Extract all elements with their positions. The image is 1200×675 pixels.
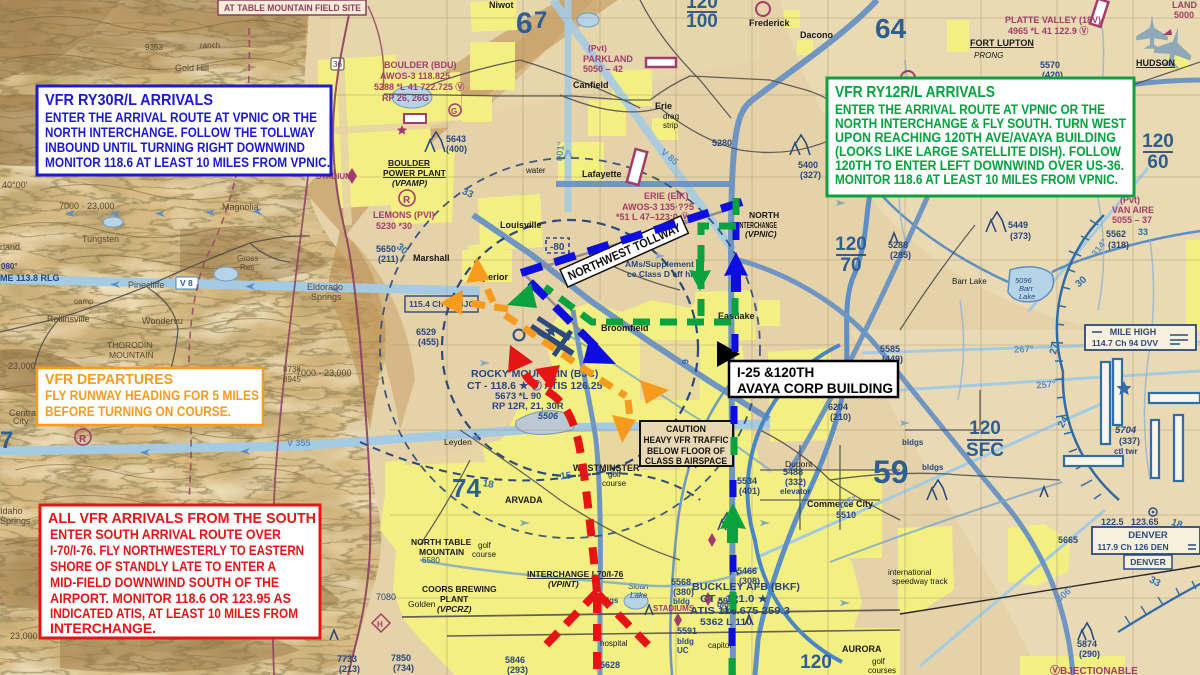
- svg-text:4965 *L 41 122.9 Ⓥ: 4965 *L 41 122.9 Ⓥ: [1008, 25, 1088, 36]
- svg-text:(213): (213): [339, 664, 360, 674]
- svg-text:5280: 5280: [712, 138, 732, 148]
- svg-text:AMs/Supplement: AMs/Supplement: [625, 259, 694, 269]
- svg-text:7000 - 23,000: 7000 - 23,000: [296, 368, 352, 378]
- svg-text:Gold Hill: Gold Hill: [175, 63, 209, 73]
- svg-text:bldg: bldg: [673, 597, 690, 606]
- svg-text:15: 15: [560, 470, 572, 482]
- svg-text:V 8: V 8: [180, 278, 193, 288]
- svg-text:6204: 6204: [828, 402, 848, 412]
- svg-text:(308): (308): [739, 576, 760, 586]
- svg-text:Lake: Lake: [1019, 292, 1035, 301]
- svg-text:ⓋBJECTIONABLE: ⓋBJECTIONABLE: [1050, 664, 1138, 675]
- svg-text:74: 74: [452, 473, 481, 503]
- svg-text:Springs: Springs: [0, 516, 31, 526]
- svg-text:7: 7: [534, 7, 547, 34]
- svg-text:NORTH INTERCHANGE. FOLLOW THE: NORTH INTERCHANGE. FOLLOW THE TOLLWAY: [45, 125, 315, 141]
- svg-text:speedway track: speedway track: [892, 577, 949, 586]
- svg-text:5562: 5562: [1106, 229, 1126, 239]
- svg-text:DENVER: DENVER: [1130, 557, 1165, 567]
- svg-text:bldg: bldg: [677, 637, 694, 646]
- svg-text:R: R: [403, 195, 411, 206]
- svg-text:5704: 5704: [1115, 425, 1137, 436]
- svg-text:V 355: V 355: [287, 438, 311, 448]
- svg-text:120: 120: [1142, 131, 1174, 152]
- svg-text:40°00': 40°00': [2, 180, 28, 190]
- svg-text:Barr Lake: Barr Lake: [952, 277, 987, 286]
- svg-text:camp: camp: [74, 297, 94, 306]
- svg-text:ctl twr: ctl twr: [1114, 447, 1138, 456]
- svg-text:NORTH INTERCHANGE & FLY SOUTH.: NORTH INTERCHANGE & FLY SOUTH. TURN WEST: [835, 116, 1127, 131]
- svg-text:Leyden: Leyden: [444, 437, 472, 447]
- svg-text:6529: 6529: [416, 327, 436, 337]
- svg-text:5568: 5568: [671, 577, 691, 587]
- svg-text:hospital: hospital: [600, 639, 628, 648]
- svg-text:CLASS B AIRSPACE: CLASS B AIRSPACE: [645, 456, 727, 466]
- svg-text:(380): (380): [673, 587, 694, 597]
- svg-text:LEMONS (PVI): LEMONS (PVI): [373, 210, 435, 220]
- svg-text:5650: 5650: [376, 244, 396, 254]
- svg-text:5000: 5000: [1174, 10, 1194, 20]
- svg-text:PARKLAND: PARKLAND: [583, 54, 633, 64]
- svg-text:Tungsten: Tungsten: [82, 234, 119, 244]
- svg-text:5643: 5643: [446, 134, 466, 144]
- svg-text:I-70/I-76. FLY NORTHWESTERLY T: I-70/I-76. FLY NORTHWESTERLY TO EASTERN: [50, 543, 304, 558]
- svg-text:MONITOR 118.6 AT LEAST 10 MILE: MONITOR 118.6 AT LEAST 10 MILES FROM VPN…: [45, 155, 330, 171]
- svg-text:001°: 001°: [554, 141, 567, 162]
- svg-text:Springs: Springs: [311, 292, 342, 302]
- svg-text:PLATTE VALLEY (18V): PLATTE VALLEY (18V): [1005, 15, 1101, 25]
- svg-text:Lake: Lake: [630, 591, 648, 600]
- svg-text:Louisville: Louisville: [500, 220, 542, 230]
- svg-text:H: H: [377, 620, 383, 629]
- svg-text:courses: courses: [868, 666, 896, 675]
- svg-text:SHORE OF STANDLY LATE TO ENTER: SHORE OF STANDLY LATE TO ENTER A: [50, 559, 276, 574]
- svg-text:ranch: ranch: [200, 41, 220, 50]
- svg-text:23,000: 23,000: [10, 631, 38, 641]
- svg-text:MOUNTAIN: MOUNTAIN: [109, 350, 154, 360]
- svg-text:Magnolia: Magnolia: [222, 202, 259, 212]
- svg-text:BELOW FLOOR OF: BELOW FLOOR OF: [647, 446, 726, 456]
- svg-text:Wondervu: Wondervu: [142, 316, 183, 326]
- svg-text:(332): (332): [785, 477, 806, 487]
- svg-text:PLANT: PLANT: [440, 594, 469, 604]
- svg-text:(VPINT): (VPINT): [548, 579, 579, 589]
- svg-text:7850: 7850: [391, 653, 411, 663]
- svg-text:(211): (211): [378, 254, 399, 264]
- svg-text:PRONG: PRONG: [974, 51, 1003, 60]
- svg-text:9353: 9353: [145, 43, 163, 52]
- svg-text:AWOS-3 135·??5: AWOS-3 135·??5: [622, 202, 694, 212]
- svg-text:7: 7: [0, 427, 13, 454]
- svg-text:5466: 5466: [737, 566, 757, 576]
- svg-text:8945: 8945: [283, 375, 301, 384]
- svg-text:Marshall: Marshall: [413, 253, 450, 263]
- svg-text:(210): (210): [830, 412, 851, 422]
- svg-text:Frederick: Frederick: [749, 18, 791, 28]
- svg-text:Gross: Gross: [237, 254, 258, 263]
- svg-text:ARVADA: ARVADA: [505, 495, 543, 505]
- svg-text:G: G: [451, 107, 457, 116]
- svg-text:Eldorado: Eldorado: [307, 282, 343, 292]
- svg-text:INTERCHANGE I-70/I-76: INTERCHANGE I-70/I-76: [527, 569, 624, 579]
- svg-text:MILE HIGH: MILE HIGH: [1110, 327, 1157, 337]
- svg-text:114.7 Ch 94 DVV: 114.7 Ch 94 DVV: [1092, 338, 1158, 348]
- svg-text:117.9 Ch 126 DEN: 117.9 Ch 126 DEN: [1097, 542, 1168, 552]
- svg-text:5288 *L 41 722.725 Ⓥ: 5288 *L 41 722.725 Ⓥ: [374, 81, 464, 92]
- svg-text:ENTER SOUTH ARRIVAL ROUTE OVER: ENTER SOUTH ARRIVAL ROUTE OVER: [50, 527, 281, 542]
- svg-text:5510: 5510: [836, 510, 856, 520]
- svg-text:5846: 5846: [505, 655, 525, 665]
- svg-text:23,000: 23,000: [8, 361, 36, 371]
- svg-text:HUDSON: HUDSON: [1136, 58, 1175, 68]
- svg-text:120: 120: [969, 418, 1001, 439]
- svg-text:(401): (401): [739, 486, 760, 496]
- svg-text:FLY RUNWAY HEADING FOR 5 MILES: FLY RUNWAY HEADING FOR 5 MILES: [45, 388, 259, 403]
- svg-text:City: City: [13, 416, 29, 426]
- svg-text:Canfield: Canfield: [573, 80, 609, 90]
- svg-text:R: R: [79, 434, 87, 445]
- svg-text:AT TABLE MOUNTAIN FIELD SITE: AT TABLE MOUNTAIN FIELD SITE: [224, 3, 361, 14]
- svg-text:Erie: Erie: [655, 101, 672, 111]
- svg-text:(373): (373): [1010, 231, 1031, 241]
- svg-text:7000 · 23,000: 7000 · 23,000: [59, 201, 115, 211]
- svg-text:5570: 5570: [1040, 60, 1060, 70]
- svg-text:DENVER: DENVER: [1128, 530, 1168, 541]
- svg-text:-80: -80: [550, 242, 565, 253]
- svg-text:(290): (290): [1079, 649, 1100, 659]
- svg-text:Pinecliffe: Pinecliffe: [128, 280, 164, 290]
- svg-text:36: 36: [333, 60, 342, 69]
- svg-text:Rollinsville: Rollinsville: [47, 314, 90, 324]
- svg-text:100: 100: [686, 11, 718, 32]
- svg-text:I-25 &120TH: I-25 &120TH: [737, 365, 814, 380]
- svg-text:60: 60: [1147, 152, 1168, 173]
- svg-text:080°: 080°: [1, 262, 18, 271]
- svg-text:6: 6: [516, 7, 533, 40]
- svg-text:5585: 5585: [880, 344, 900, 354]
- svg-text:bldgs: bldgs: [922, 463, 944, 472]
- svg-text:INTERCHANGE.: INTERCHANGE.: [50, 621, 156, 636]
- svg-text:59: 59: [873, 454, 909, 490]
- svg-text:BEFORE TURNING ON COURSE.: BEFORE TURNING ON COURSE.: [45, 404, 231, 419]
- svg-text:5628: 5628: [600, 660, 620, 670]
- svg-text:Res: Res: [240, 263, 254, 272]
- svg-text:5288: 5288: [888, 240, 908, 250]
- svg-text:AIRPORT. MONITOR 118.6 OR 123.: AIRPORT. MONITOR 118.6 OR 123.95 AS: [50, 591, 291, 606]
- svg-text:POWER PLANT: POWER PLANT: [383, 168, 447, 178]
- svg-text:5050 – 42: 5050 – 42: [583, 64, 623, 74]
- svg-text:Lafayette: Lafayette: [582, 169, 622, 179]
- svg-text:122.5 123.65: 122.5 123.65: [1101, 517, 1159, 527]
- svg-text:(VPAMP): (VPAMP): [392, 178, 427, 188]
- svg-text:ENTER THE ARRIVAL ROUTE AT VPN: ENTER THE ARRIVAL ROUTE AT VPNIC OR THE: [835, 102, 1105, 117]
- svg-text:course: course: [602, 479, 627, 488]
- svg-text:5449: 5449: [1008, 220, 1028, 230]
- svg-text:MONITOR 118.6 AT LEAST 10 MILE: MONITOR 118.6 AT LEAST 10 MILES FROM VPN…: [835, 172, 1118, 187]
- svg-text:rland: rland: [0, 242, 20, 252]
- svg-text:5665: 5665: [1058, 535, 1078, 545]
- svg-text:COORS BREWING: COORS BREWING: [422, 584, 497, 594]
- svg-text:water: water: [525, 166, 546, 175]
- svg-text:115.4 Ch ▯▯ BJC: 115.4 Ch ▯▯ BJC: [409, 299, 475, 309]
- svg-text:ATIS 119.675 259.3: ATIS 119.675 259.3: [690, 606, 790, 617]
- svg-text:LAND (: LAND (: [1172, 0, 1200, 10]
- svg-text:CAUTION: CAUTION: [666, 424, 706, 434]
- svg-text:120TH TO ENTER LEFT DOWNWIND O: 120TH TO ENTER LEFT DOWNWIND OVER US-36.: [835, 158, 1124, 173]
- svg-text:ALL VFR ARRIVALS FROM THE SOUT: ALL VFR ARRIVALS FROM THE SOUTH: [48, 510, 316, 527]
- svg-text:AURORA: AURORA: [842, 644, 882, 654]
- svg-text:INDICATED ATIS, AT LEAST 10 MI: INDICATED ATIS, AT LEAST 10 MILES FROM: [50, 606, 298, 621]
- svg-text:Idaho: Idaho: [0, 506, 23, 516]
- svg-text:ENTER THE ARRIVAL ROUTE AT VPN: ENTER THE ARRIVAL ROUTE AT VPNIC OR THE: [45, 110, 317, 126]
- svg-text:golf: golf: [478, 541, 492, 550]
- svg-text:5591: 5591: [677, 626, 697, 636]
- svg-text:golf: golf: [872, 657, 886, 666]
- svg-text:5506: 5506: [538, 411, 559, 421]
- svg-text:ERIE (EIK): ERIE (EIK): [644, 191, 689, 201]
- svg-text:267°: 267°: [1014, 344, 1034, 356]
- svg-text:(VPCRZ): (VPCRZ): [437, 604, 472, 614]
- svg-text:(Pvt): (Pvt): [588, 43, 607, 53]
- svg-text:AVAYA CORP BUILDING: AVAYA CORP BUILDING: [737, 381, 893, 396]
- svg-text:5534: 5534: [737, 476, 757, 486]
- svg-text:5055 – 37: 5055 – 37: [1112, 215, 1152, 225]
- svg-text:BOULDER (BDU): BOULDER (BDU): [384, 60, 457, 70]
- svg-text:5400: 5400: [798, 160, 818, 170]
- svg-text:VFR RY30R/L ARRIVALS: VFR RY30R/L ARRIVALS: [45, 92, 213, 109]
- svg-text:HEAVY VFR TRAFFIC: HEAVY VFR TRAFFIC: [644, 435, 730, 445]
- svg-text:7733: 7733: [337, 654, 357, 664]
- svg-text:UC: UC: [677, 646, 689, 655]
- svg-text:7080: 7080: [376, 592, 396, 602]
- svg-text:33: 33: [1138, 227, 1148, 237]
- svg-text:MID-FIELD DOWNWIND SOUTH OF TH: MID-FIELD DOWNWIND SOUTH OF THE: [50, 575, 279, 590]
- svg-text:120: 120: [800, 652, 832, 673]
- svg-text:bldgs: bldgs: [902, 438, 924, 447]
- svg-text:Dacono: Dacono: [800, 30, 834, 40]
- svg-text:6580: 6580: [422, 556, 440, 565]
- svg-text:capitol: capitol: [708, 641, 731, 650]
- svg-text:RP 26, 26G: RP 26, 26G: [382, 93, 429, 103]
- svg-text:NORTH TABLE: NORTH TABLE: [411, 537, 472, 547]
- svg-text:VFR RY12R/L ARRIVALS: VFR RY12R/L ARRIVALS: [835, 84, 995, 101]
- svg-text:(400): (400): [446, 144, 467, 154]
- svg-text:BOULDER: BOULDER: [388, 158, 430, 168]
- svg-text:international: international: [888, 568, 932, 577]
- svg-text:ME 113.8 RLG: ME 113.8 RLG: [0, 273, 60, 283]
- svg-text:UPON REACHING 120TH AVE/AVAYA: UPON REACHING 120TH AVE/AVAYA BUILDING: [835, 130, 1116, 145]
- svg-text:(LOOKS LIKE LARGE SATELLITE DI: (LOOKS LIKE LARGE SATELLITE DISH). FOLLO…: [835, 144, 1121, 159]
- svg-text:Niwot: Niwot: [489, 0, 514, 10]
- svg-text:THORODIN: THORODIN: [107, 340, 152, 350]
- svg-text:64: 64: [875, 13, 907, 44]
- svg-text:strip: strip: [663, 121, 679, 130]
- svg-text:(455): (455): [418, 337, 439, 347]
- svg-text:(327): (327): [800, 170, 821, 180]
- svg-text:AWOS-3 118.825: AWOS-3 118.825: [380, 71, 450, 81]
- svg-text:FORT LUPTON: FORT LUPTON: [970, 38, 1034, 48]
- svg-text:(VPNIC): (VPNIC): [745, 229, 777, 239]
- svg-text:(318): (318): [1108, 240, 1129, 250]
- svg-text:elevator: elevator: [780, 487, 811, 496]
- svg-text:VAN AIRE: VAN AIRE: [1112, 205, 1154, 215]
- svg-text:Golden: Golden: [408, 599, 436, 609]
- svg-text:5874: 5874: [1077, 639, 1097, 649]
- svg-text:5362 L 110: 5362 L 110: [700, 617, 752, 627]
- svg-text:120: 120: [835, 234, 867, 255]
- svg-text:(293): (293): [507, 665, 528, 675]
- svg-text:NORTH: NORTH: [749, 210, 779, 220]
- svg-text:golf: golf: [608, 470, 622, 479]
- svg-text:(734): (734): [393, 663, 414, 673]
- svg-text:VFR DEPARTURES: VFR DEPARTURES: [45, 372, 173, 388]
- svg-text:SFC: SFC: [966, 440, 1004, 461]
- svg-text:INBOUND UNTIL TURNING RIGHT DO: INBOUND UNTIL TURNING RIGHT DOWNWIND: [45, 140, 305, 156]
- svg-text:5488: 5488: [783, 467, 803, 477]
- svg-text:5230 *30: 5230 *30: [376, 221, 412, 231]
- svg-text:ce Class D eff hrs: ce Class D eff hrs: [627, 269, 699, 279]
- svg-text:257°: 257°: [1036, 379, 1057, 392]
- svg-text:(285): (285): [890, 250, 911, 260]
- svg-text:drag: drag: [663, 112, 679, 121]
- svg-text:70: 70: [840, 255, 861, 276]
- svg-text:(337): (337): [1119, 436, 1140, 446]
- svg-text:course: course: [472, 550, 497, 559]
